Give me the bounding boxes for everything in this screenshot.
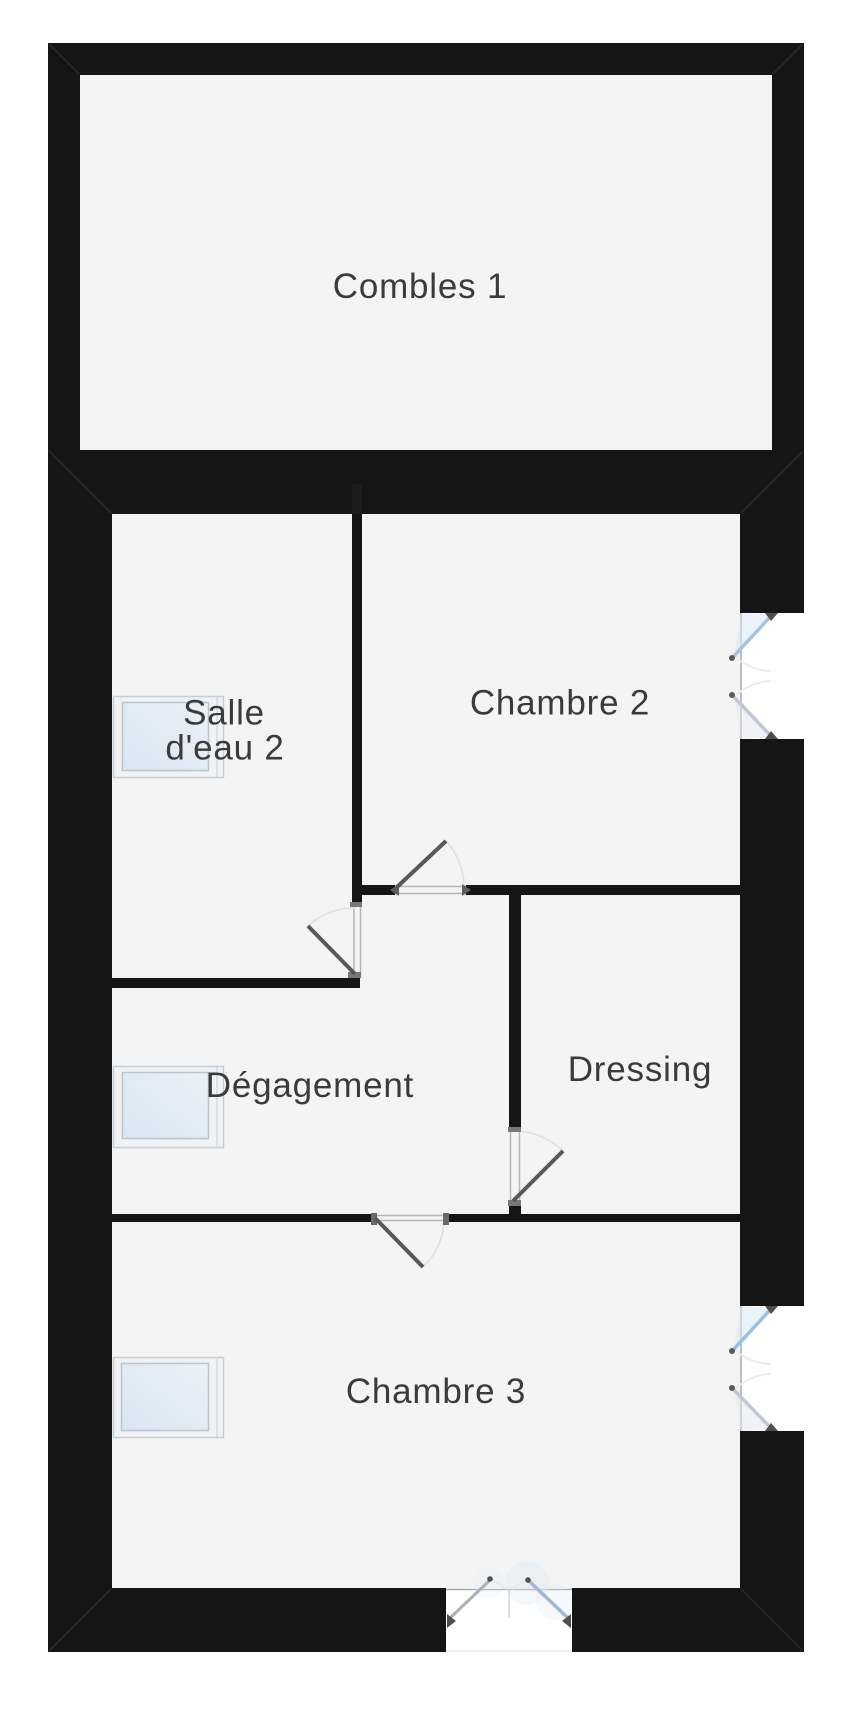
svg-text:Dressing: Dressing bbox=[568, 1050, 713, 1089]
svg-text:Dégagement: Dégagement bbox=[206, 1066, 414, 1105]
svg-text:Chambre 3: Chambre 3 bbox=[346, 1372, 526, 1411]
svg-text:Salle: Salle bbox=[183, 694, 265, 733]
svg-text:d'eau 2: d'eau 2 bbox=[165, 729, 284, 768]
svg-text:Combles 1: Combles 1 bbox=[333, 267, 508, 306]
svg-text:Chambre 2: Chambre 2 bbox=[470, 684, 650, 723]
